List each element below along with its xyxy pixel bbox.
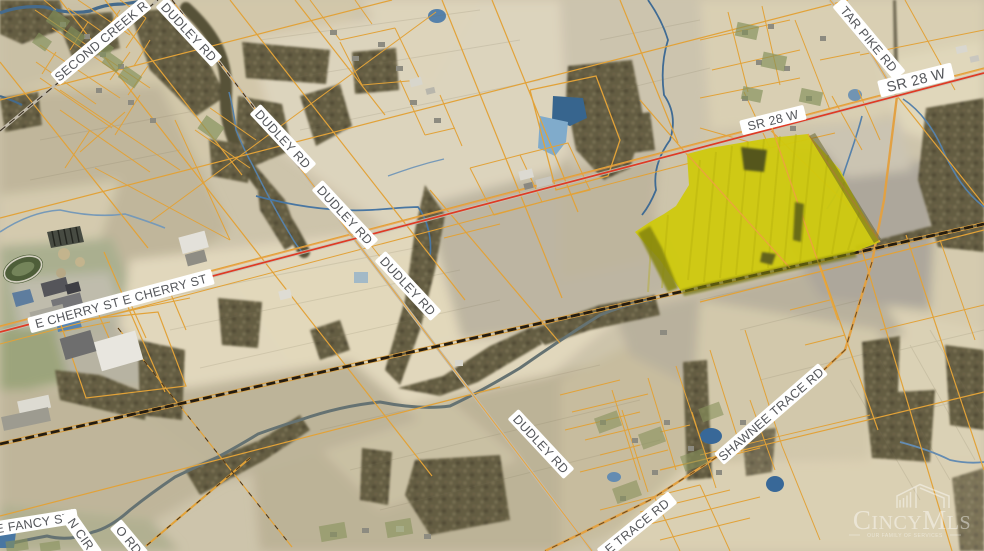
svg-text:OUR FAMILY OF SERVICES: OUR FAMILY OF SERVICES (867, 533, 943, 539)
